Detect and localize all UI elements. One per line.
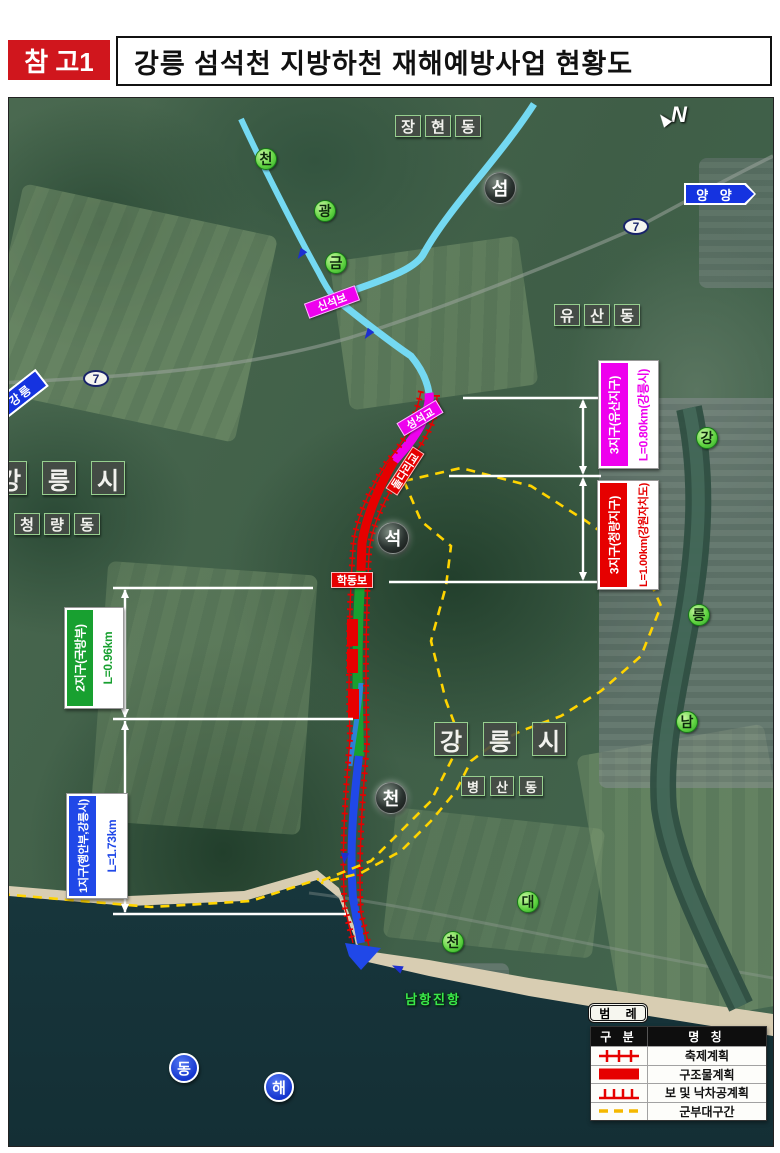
marker-seomseokcheon-cheon: 천 <box>375 782 407 814</box>
label-hakdongbo-weir: 학동보 <box>331 572 373 588</box>
sign-yangyang: 양 양 <box>684 183 756 205</box>
page-title-box: 강릉 섬석천 지방하천 재해예방사업 현황도 <box>116 36 772 86</box>
farm-fields-northwest <box>8 183 278 442</box>
label-cheongnyangdong: 청량동 <box>14 513 100 535</box>
legend-row-structure: 구조물계획 <box>647 1065 766 1084</box>
marker-namdaecheon-cheon: 천 <box>442 931 464 953</box>
marker-seomseokcheon-seom: 섬 <box>484 172 516 204</box>
label-janghyeondong: 장현동 <box>395 115 481 137</box>
legend-col-type: 구 분 <box>591 1027 647 1046</box>
farm-fields-center <box>329 236 538 411</box>
legend-row-weir: 보 및 낙차공계획 <box>647 1083 766 1102</box>
reference-badge: 참 고1 <box>8 40 110 80</box>
marker-namdaecheon-dae: 대 <box>517 891 539 913</box>
marker-geumgwangcheon-gwang: 광 <box>314 200 336 222</box>
marker-namdaecheon-nam: 남 <box>676 711 698 733</box>
legend-col-name: 명 칭 <box>647 1027 766 1046</box>
reach-1-blue <box>352 756 361 943</box>
reach-3-cheongnyang-red <box>361 461 394 571</box>
legend-row-embankment: 축제계획 <box>647 1046 766 1065</box>
marker-geumgwangcheon-cheon: 천 <box>255 148 277 170</box>
north-arrow-icon <box>656 111 672 127</box>
marker-namdaecheon-gang: 강 <box>696 427 718 449</box>
farm-fields-south <box>383 807 605 958</box>
marker-sea-dong: 동 <box>169 1053 199 1083</box>
section-label-1-interior: 1지구(행안부,강릉시) L=1.73km <box>66 793 128 899</box>
label-byeongsandong: 병산동 <box>461 776 543 796</box>
marker-geumgwangcheon-geum: 금 <box>325 252 347 274</box>
route7-shield-north: 7 <box>623 218 649 235</box>
structure-plan-blocks <box>347 619 359 719</box>
page-title: 강릉 섬석천 지방하천 재해예방사업 현황도 <box>118 42 633 81</box>
urban-area-northeast <box>699 158 774 288</box>
route7-shield-west: 7 <box>83 370 109 387</box>
label-seongseokgyo-bridge: 성석교 <box>396 400 443 437</box>
north-label: N <box>671 102 687 128</box>
compass: N <box>659 102 687 128</box>
label-gangneung-city-center: 강릉시 <box>434 722 566 756</box>
legend-table: 구 분 명 칭 축제계획 구조물계획 보 및 낙차공계획 군부대구간 <box>590 1026 767 1121</box>
embankment-line-symbol <box>591 1046 647 1065</box>
reach-2-green <box>358 571 361 756</box>
side-channel-blue <box>350 683 361 766</box>
structure-solid-symbol <box>591 1065 647 1084</box>
section-label-3-yusan: 3지구(유산지구) L=0.80km(강릉시) <box>598 360 659 469</box>
label-yusandong: 유산동 <box>554 304 640 326</box>
label-doldarigyo-bridge: 돌다리교 <box>386 446 425 496</box>
marker-seomseokcheon-seok: 석 <box>377 522 409 554</box>
military-zone-dashed-symbol <box>591 1102 647 1121</box>
satellite-map: N 양 양 강릉 7 7 장현동 유산동 청량동 병산동 강릉시 강릉시 천 광… <box>8 97 774 1147</box>
section-label-2-defense: 2지구(국방부) L=0.96km <box>64 607 124 709</box>
weir-drop-comb-symbol <box>591 1083 647 1102</box>
label-gangneung-city-west: 강릉시 <box>8 461 125 495</box>
section-label-3-cheongnyang: 3지구(청량지구) L=1.00km(강원자치도) <box>597 480 659 590</box>
marker-namdaecheon-neung: 릉 <box>688 604 710 626</box>
legend-row-military: 군부대구간 <box>647 1102 766 1121</box>
marker-sea-hae: 해 <box>264 1072 294 1102</box>
label-namhangjin-port: 남항진항 <box>373 989 493 1008</box>
legend-title-box: 범 례 <box>588 1003 648 1023</box>
